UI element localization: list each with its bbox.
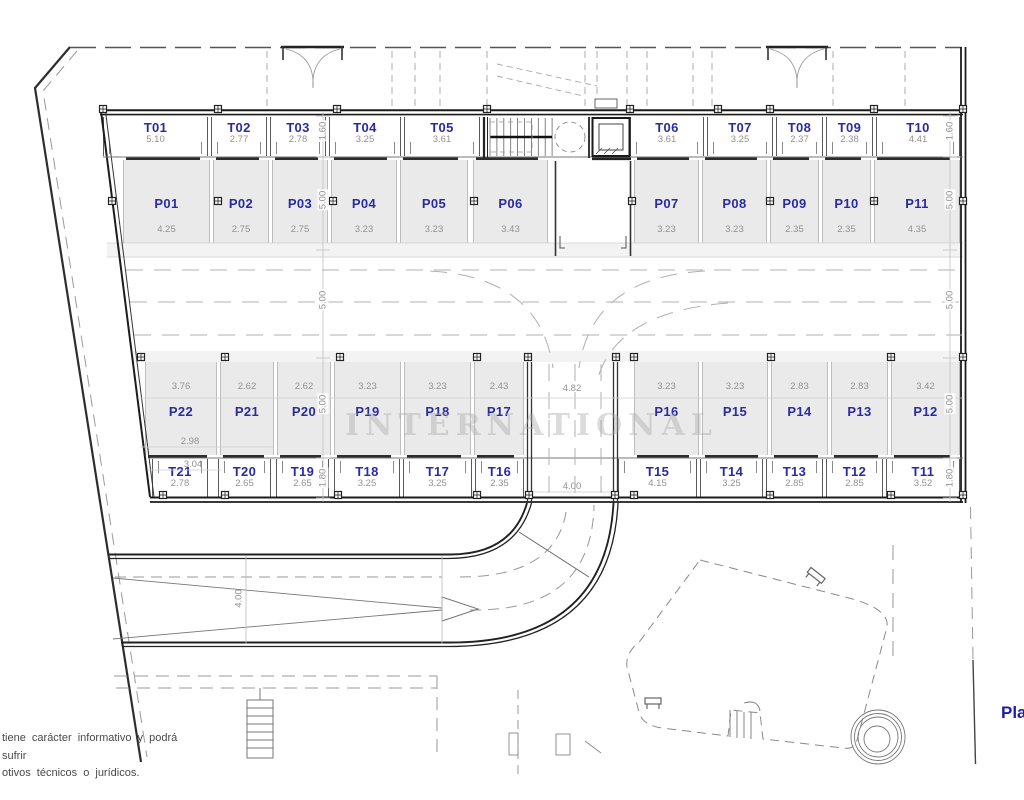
unit-cell-T20: T20 2.65 <box>218 459 271 497</box>
unit-dimension: 2.35 <box>476 478 523 489</box>
unit-cell-P10: P10 2.35 <box>822 160 871 243</box>
unit-label: P05 <box>401 196 467 211</box>
unit-cell-T09: T09 2.38 <box>826 117 873 156</box>
dim-p22-sub2: 3.04 <box>165 459 221 470</box>
dim-center-gap-top: 4.82 <box>544 383 600 394</box>
unit-cell-T08: T08 2.37 <box>776 117 823 156</box>
unit-dimension: 3.23 <box>635 381 698 392</box>
unit-dimension: 3.61 <box>405 134 479 145</box>
chain-dim-right: 5.00 <box>945 290 956 311</box>
unit-cell-T15: T15 4.15 <box>618 459 697 497</box>
disclaimer-line2: otivos técnicos o jurídicos. <box>2 765 194 783</box>
unit-dimension: 2.85 <box>827 478 882 489</box>
unit-dimension: 3.25 <box>335 478 399 489</box>
unit-dimension: 2.83 <box>832 381 887 392</box>
unit-label: T09 <box>827 120 872 135</box>
unit-dimension: 3.25 <box>708 134 772 145</box>
unit-cell-T14: T14 3.25 <box>700 459 763 497</box>
unit-dimension: 3.25 <box>404 478 471 489</box>
chain-dim-left: 1.60 <box>318 121 329 142</box>
unit-label: T08 <box>777 120 822 135</box>
unit-dimension: 2.62 <box>278 381 330 392</box>
unit-dimension: 3.23 <box>635 224 698 235</box>
unit-cell-P14: P14 2.83 <box>771 362 828 455</box>
unit-dimension: 3.23 <box>703 381 767 392</box>
unit-dimension: 2.62 <box>221 381 273 392</box>
disclaimer-note: tiene carácter informativo y podrá sufri… <box>2 730 194 783</box>
unit-cell-P09: P09 2.35 <box>770 160 819 243</box>
chain-dim-left: 5.00 <box>318 290 329 311</box>
unit-label: P07 <box>635 196 698 211</box>
unit-dimension: 3.23 <box>401 224 467 235</box>
unit-label: P09 <box>771 196 818 211</box>
unit-dimension: 2.43 <box>475 381 523 392</box>
unit-label: T16 <box>476 464 523 479</box>
unit-cell-T02: T02 2.77 <box>211 117 267 156</box>
disclaimer-line1: tiene carácter informativo y podrá sufri… <box>2 730 194 765</box>
unit-dimension: 3.25 <box>701 478 762 489</box>
chain-dim-right: 1.80 <box>945 468 956 489</box>
floor-plan-canvas: T01 5.10 T02 2.77 T03 2.78 T04 3.25 T05 … <box>0 0 1024 800</box>
unit-label: P01 <box>124 196 209 211</box>
unit-dimension: 3.23 <box>405 381 470 392</box>
unit-cell-T07: T07 3.25 <box>707 117 773 156</box>
dim-ramp-width: 4.00 <box>234 582 245 616</box>
unit-dimension: 2.35 <box>771 224 818 235</box>
unit-cells-layer: T01 5.10 T02 2.77 T03 2.78 T04 3.25 T05 … <box>0 0 1024 800</box>
unit-dimension: 3.76 <box>146 381 216 392</box>
unit-cell-T06: T06 3.61 <box>630 117 704 156</box>
unit-cell-T17: T17 3.25 <box>403 459 472 497</box>
unit-dimension: 3.42 <box>892 381 959 392</box>
unit-dimension: 3.23 <box>335 381 400 392</box>
unit-label: P10 <box>823 196 870 211</box>
unit-cell-T13: T13 2.85 <box>766 459 823 497</box>
unit-dimension: 2.77 <box>212 134 266 145</box>
unit-label: T07 <box>708 120 772 135</box>
unit-label: T17 <box>404 464 471 479</box>
unit-cell-P06: P06 3.43 <box>473 160 548 243</box>
unit-dimension: 3.61 <box>631 134 703 145</box>
dim-p22-sub1: 2.98 <box>162 436 218 447</box>
unit-label: P04 <box>332 196 396 211</box>
unit-dimension: 2.83 <box>772 381 827 392</box>
chain-dim-right: 5.00 <box>945 394 956 415</box>
unit-label: T14 <box>701 464 762 479</box>
unit-label: T01 <box>104 120 207 135</box>
chain-dim-left: 5.00 <box>318 190 329 211</box>
watermark: INTERNATIONAL <box>345 408 685 443</box>
unit-dimension: 2.85 <box>767 478 822 489</box>
unit-cell-P02: P02 2.75 <box>213 160 269 243</box>
unit-label: T13 <box>767 464 822 479</box>
unit-dimension: 3.23 <box>332 224 396 235</box>
unit-label: T04 <box>330 120 400 135</box>
unit-cell-P21: P21 2.62 <box>220 362 274 455</box>
unit-label: P08 <box>703 196 766 211</box>
unit-dimension: 2.78 <box>153 478 207 489</box>
unit-cell-T12: T12 2.85 <box>826 459 883 497</box>
unit-dimension: 2.37 <box>777 134 822 145</box>
unit-label: T12 <box>827 464 882 479</box>
dim-center-road-width: 4.00 <box>544 481 600 492</box>
unit-cell-P04: P04 3.23 <box>331 160 397 243</box>
chain-dim-right: 5.00 <box>945 190 956 211</box>
unit-dimension: 5.10 <box>104 134 207 145</box>
unit-label: T05 <box>405 120 479 135</box>
unit-label: T02 <box>212 120 266 135</box>
unit-cell-P07: P07 3.23 <box>634 160 699 243</box>
unit-cell-T18: T18 3.25 <box>334 459 400 497</box>
unit-cell-T01: T01 5.10 <box>103 117 208 156</box>
unit-cell-T04: T04 3.25 <box>329 117 401 156</box>
unit-dimension: 2.35 <box>823 224 870 235</box>
unit-dimension: 4.35 <box>875 224 959 235</box>
unit-cell-P01: P01 4.25 <box>123 160 210 243</box>
unit-label: P21 <box>221 404 273 419</box>
chain-dim-right: 1.60 <box>945 121 956 142</box>
unit-cell-P13: P13 2.83 <box>831 362 888 455</box>
unit-label: P14 <box>772 404 827 419</box>
unit-cell-T05: T05 3.61 <box>404 117 480 156</box>
unit-dimension: 3.43 <box>474 224 547 235</box>
unit-label: P06 <box>474 196 547 211</box>
unit-cell-T16: T16 2.35 <box>475 459 524 497</box>
chain-dim-left: 5.00 <box>318 394 329 415</box>
unit-dimension: 3.25 <box>330 134 400 145</box>
unit-label: T15 <box>619 464 696 479</box>
sheet-title: Pla <box>1001 703 1024 723</box>
unit-label: P22 <box>146 404 216 419</box>
unit-label: P13 <box>832 404 887 419</box>
unit-dimension: 2.38 <box>827 134 872 145</box>
unit-dimension: 4.15 <box>619 478 696 489</box>
unit-dimension: 2.75 <box>273 224 327 235</box>
unit-label: T20 <box>219 464 270 479</box>
unit-cell-P05: P05 3.23 <box>400 160 468 243</box>
unit-dimension: 4.25 <box>124 224 209 235</box>
unit-cell-P08: P08 3.23 <box>702 160 767 243</box>
unit-dimension: 2.65 <box>219 478 270 489</box>
unit-label: T18 <box>335 464 399 479</box>
unit-dimension: 3.23 <box>703 224 766 235</box>
unit-label: P02 <box>214 196 268 211</box>
chain-dim-left: 1.80 <box>318 468 329 489</box>
unit-dimension: 2.75 <box>214 224 268 235</box>
unit-label: T06 <box>631 120 703 135</box>
